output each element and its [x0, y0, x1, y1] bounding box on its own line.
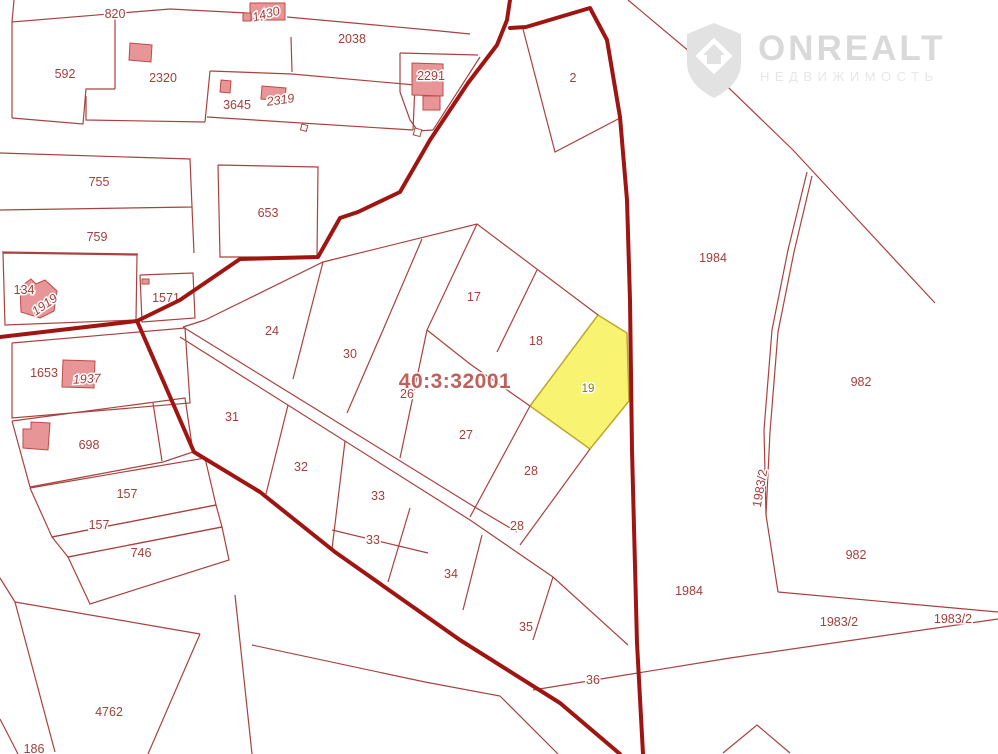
parcel-boundary-line [15, 602, 55, 752]
parcel-label: 28 [524, 464, 538, 478]
parcel-boundary-line [427, 224, 477, 330]
building-footprint [243, 13, 251, 21]
parcel-label: 34 [444, 567, 458, 581]
parcel-boundary-line [235, 595, 252, 754]
parcel-label: 186 [24, 742, 45, 754]
parcel-label: 36 [586, 673, 600, 687]
parcel-label: 1937 [73, 371, 103, 386]
survey-marker [413, 128, 422, 137]
parcel-boundary-line [400, 53, 478, 55]
parcel-boundary-line [427, 330, 530, 406]
parcel-boundary-line [463, 535, 482, 610]
parcel-label: 1984 [699, 251, 727, 265]
building-footprint [220, 80, 231, 93]
parcel-boundary-line [12, 89, 115, 124]
parcel-boundary-line [287, 17, 470, 34]
parcel-label: 28 [510, 519, 524, 533]
parcel-label: 17 [467, 290, 481, 304]
parcel-label: 592 [55, 67, 76, 81]
parcel-label: 755 [89, 175, 110, 189]
parcel-label: 157 [89, 518, 110, 532]
parcel-boundary-line [533, 619, 998, 690]
parcel-label: 1983/2 [934, 612, 972, 626]
parcel-label: 35 [519, 620, 533, 634]
parcel-boundary-line [15, 602, 200, 634]
parcel-boundary-line [523, 29, 620, 152]
parcel-label: 1983/2 [820, 615, 858, 629]
parcel-boundary-line [252, 645, 558, 754]
parcel-label: 24 [265, 324, 279, 338]
parcel-boundary-line [533, 577, 553, 640]
parcel-boundary-line [291, 37, 292, 72]
parcel-label: 653 [258, 206, 279, 220]
parcel-label: 27 [459, 428, 473, 442]
cadastral-map-page: 8201430203859223203645231922912755653759… [0, 0, 998, 754]
parcel-label: 3645 [223, 98, 251, 112]
parcel-boundary-line [723, 725, 790, 753]
parcel-label: 759 [87, 230, 108, 244]
parcel-label: 33 [371, 489, 385, 503]
parcel-label: 4762 [95, 705, 123, 719]
parcel-boundary-line [628, 0, 935, 303]
cadastral-map[interactable]: 8201430203859223203645231922912755653759… [0, 0, 998, 754]
parcel-boundary-line [293, 262, 323, 379]
parcel-boundary-line [778, 592, 998, 612]
survey-marker [300, 124, 307, 131]
parcel-boundary-line [205, 224, 598, 320]
parcel-label: 2320 [149, 71, 177, 85]
parcel-label: 33 [366, 533, 380, 547]
quarter-number-label: 40:3:32001 [399, 370, 511, 393]
parcel-label: 982 [846, 548, 867, 562]
parcel-label: 1984 [675, 584, 703, 598]
highlighted-parcel-19[interactable] [530, 315, 629, 449]
parcel-boundary-line [266, 405, 288, 494]
parcel-boundary-line [148, 634, 200, 754]
parcel-label: 2291 [417, 69, 445, 83]
parcel-label: 2319 [265, 91, 296, 109]
parcel-label: 2 [570, 71, 577, 85]
parcel-label: 2038 [338, 32, 366, 46]
building-footprint [423, 96, 440, 110]
parcel-label: 31 [225, 410, 239, 424]
parcel-boundary-line [388, 508, 410, 582]
parcel-label: 698 [79, 438, 100, 452]
parcel-boundary-line [332, 530, 428, 553]
parcel-label: 30 [343, 347, 357, 361]
parcel-boundary-line [205, 71, 210, 122]
parcel-label: 18 [529, 334, 543, 348]
parcel-boundary-line [12, 0, 247, 22]
highlighted-parcel-label: 19 [582, 383, 595, 395]
building-footprint [23, 422, 50, 450]
parcel-boundary-line [153, 403, 162, 461]
parcel-label: 1653 [30, 366, 58, 380]
parcel-boundary-line [470, 406, 530, 517]
parcel-boundary-line [183, 320, 205, 327]
building-footprint [142, 279, 149, 284]
parcel-label: 32 [294, 460, 308, 474]
parcel-boundary-line [86, 96, 205, 122]
parcel-boundary-line [0, 578, 15, 602]
parcel-boundary-line [766, 515, 778, 592]
parcel-label: 746 [131, 546, 152, 560]
parcel-boundary-line [210, 71, 415, 85]
quarter-boundary-line [0, 321, 137, 337]
parcel-boundary-line [207, 117, 413, 130]
parcel-label: 134 [14, 283, 35, 297]
parcel-boundary-line [192, 207, 194, 253]
parcel-boundary-line [68, 527, 229, 604]
parcel-boundary-line [766, 176, 812, 515]
parcel-label: 157 [117, 487, 138, 501]
building-footprint [129, 43, 152, 62]
parcel-boundary-line [553, 577, 628, 645]
parcel-label: 820 [105, 7, 126, 21]
parcel-label: 982 [851, 375, 872, 389]
parcel-boundary-line [0, 719, 18, 754]
